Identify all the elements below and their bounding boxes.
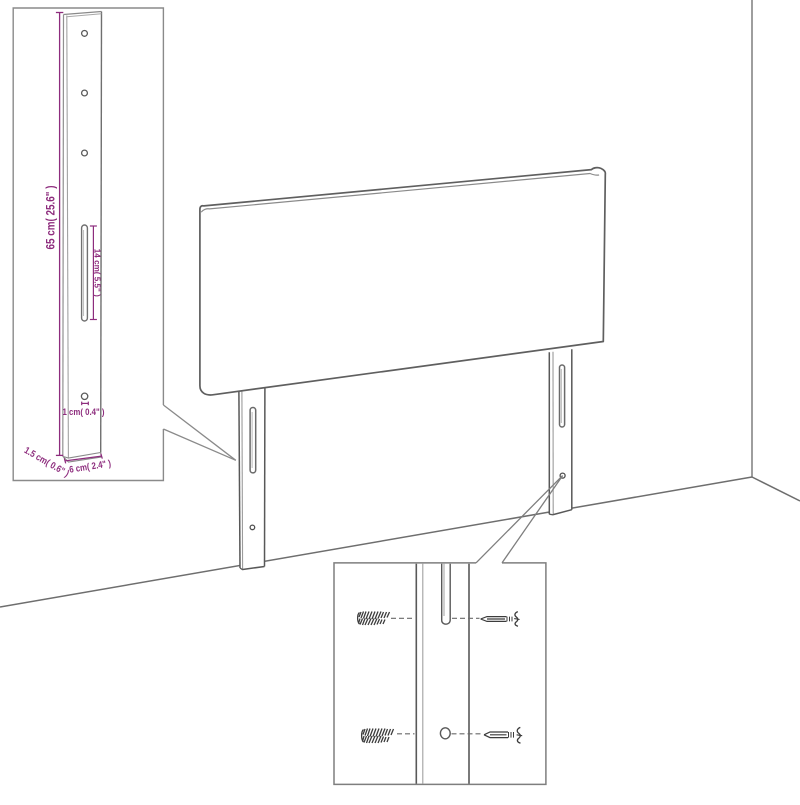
svg-text:65 cm( 25.6" ): 65 cm( 25.6" )	[44, 186, 58, 250]
svg-text:14 cm( 5.5" ): 14 cm( 5.5" )	[93, 249, 102, 297]
svg-text:1 cm( 0.4" ): 1 cm( 0.4" )	[63, 407, 105, 418]
